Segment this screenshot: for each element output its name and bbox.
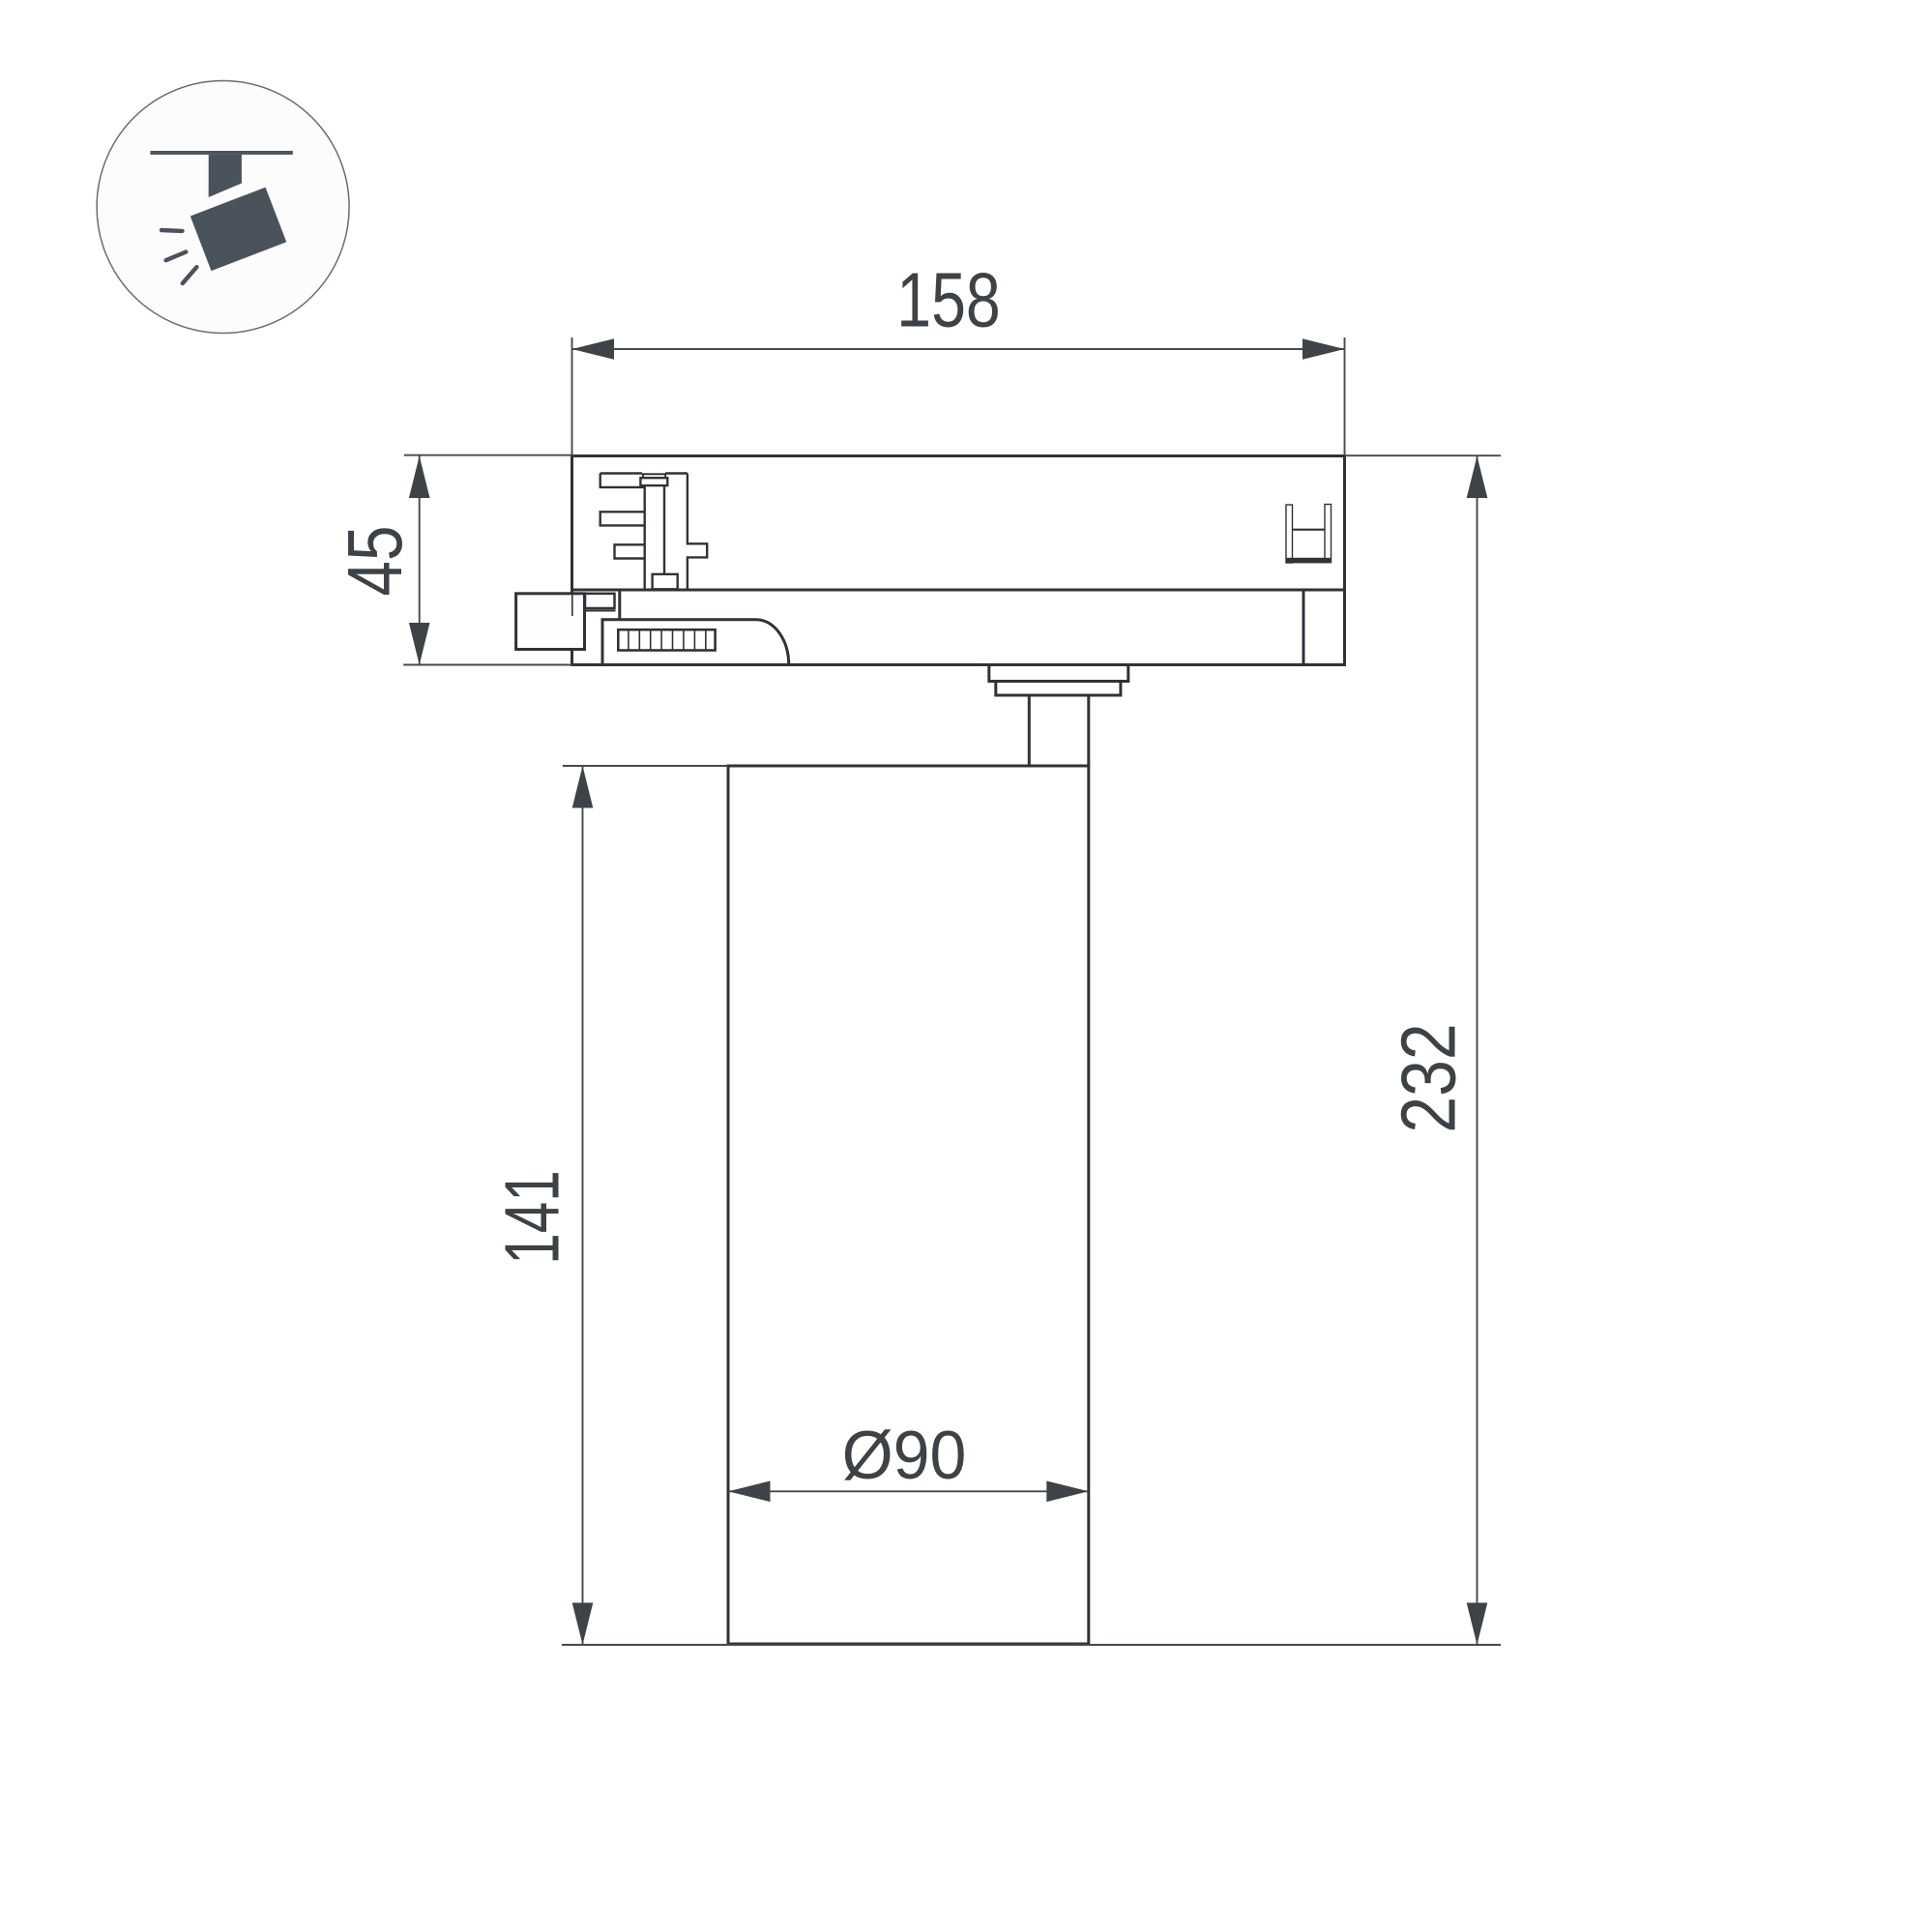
svg-text:Ø90: Ø90 xyxy=(842,1417,967,1493)
svg-text:158: 158 xyxy=(896,257,1000,343)
svg-text:45: 45 xyxy=(332,526,419,597)
svg-text:232: 232 xyxy=(1385,1023,1471,1132)
svg-text:141: 141 xyxy=(489,1170,575,1265)
